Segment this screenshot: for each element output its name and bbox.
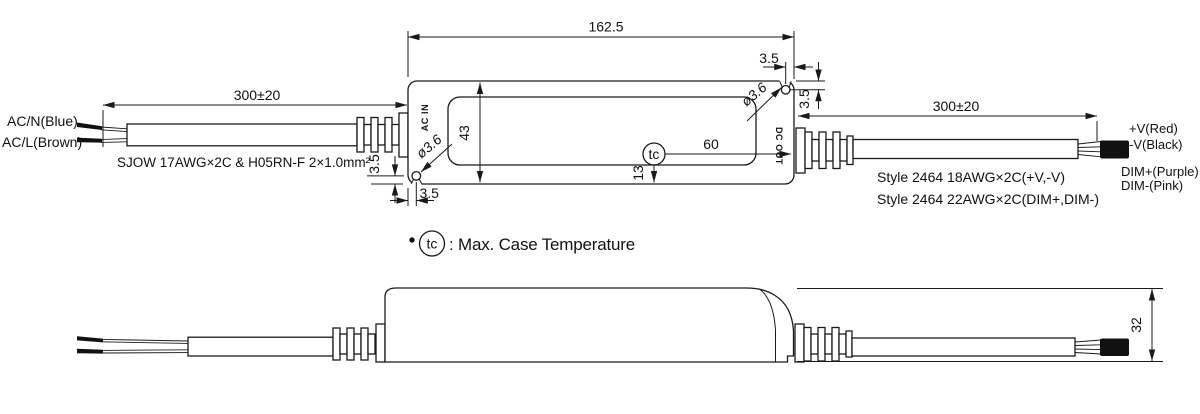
- dim-35-trh-text: 3.5: [759, 50, 779, 66]
- output-strain-relief: [796, 128, 853, 173]
- sv-output-tip: [1100, 339, 1129, 357]
- sv-input-jacket: [188, 337, 333, 356]
- dim-hole-h-right: 3.5: [759, 50, 813, 84]
- input-strain-relief: [357, 113, 408, 157]
- sv-output-jacket: [852, 338, 1075, 356]
- dim-cable-right: 300±20: [798, 98, 1097, 141]
- dim-case-length: 162.5: [408, 19, 794, 80]
- input-cable-jacket: [127, 124, 357, 146]
- top-view: AC IN DC OUT tc 60 13 43 162.5: [2, 19, 1199, 208]
- mechanical-drawing: AC IN DC OUT tc 60 13 43 162.5: [0, 0, 1200, 414]
- sv-input-tip-2: [77, 349, 103, 354]
- dim-hole-h-left: 3.5: [390, 182, 439, 206]
- note-text: : Max. Case Temperature: [449, 235, 635, 254]
- dim-35-trv-text: 3.5: [796, 89, 812, 109]
- output-spec1-label: Style 2464 18AWG×2C(+V,-V): [877, 169, 1065, 185]
- vminus-label: -V(Black): [1129, 137, 1182, 152]
- dim-32-text: 32: [1128, 317, 1144, 333]
- dim-300-right-text: 300±20: [933, 98, 980, 114]
- note-tc-symbol: tc: [427, 236, 438, 252]
- dim-minus-label: DIM-(Pink): [1121, 178, 1183, 193]
- dim-13-text: 13: [630, 165, 646, 181]
- dim-300-left-text: 300±20: [234, 87, 281, 103]
- input-wire-tip-1: [77, 123, 102, 131]
- dim-plus-label: DIM+(Purple): [1121, 164, 1199, 179]
- sv-input-strain-relief: [333, 324, 385, 362]
- sv-case-outline: [385, 288, 794, 362]
- dc-out-label: DC OUT: [774, 127, 784, 165]
- output-cable: [796, 128, 1129, 173]
- dim-hole-v-left: 3.5: [366, 154, 404, 203]
- tc-symbol-text: tc: [649, 146, 660, 162]
- sv-input-tip-1: [77, 336, 103, 342]
- side-view: 32: [77, 288, 1163, 362]
- drawing-canvas: AC IN DC OUT tc 60 13 43 162.5: [0, 0, 1200, 414]
- dim-hole-v-right: 3.5: [791, 62, 826, 109]
- input-cable: [77, 113, 408, 157]
- output-wire-tip: [1100, 141, 1129, 159]
- ac-n-label: AC/N(Blue): [7, 113, 78, 129]
- dim-43-text: 43: [456, 125, 472, 141]
- tc-note: tc : Max. Case Temperature: [409, 231, 635, 256]
- dim-162-text: 162.5: [588, 19, 623, 35]
- sv-output-strain-relief: [795, 324, 852, 362]
- ac-in-label: AC IN: [420, 104, 430, 132]
- ac-l-label: AC/L(Brown): [2, 134, 82, 150]
- output-spec2-label: Style 2464 22AWG×2C(DIM+,DIM-): [877, 191, 1099, 207]
- vplus-label: +V(Red): [1129, 121, 1178, 136]
- input-spec-label: SJOW 17AWG×2C & H05RN-F 2×1.0mm²: [117, 155, 371, 170]
- note-bullet: [409, 237, 414, 242]
- dim-35-blh-text: 3.5: [420, 185, 440, 201]
- output-cable-jacket: [853, 140, 1078, 159]
- dim-60-text: 60: [703, 136, 719, 152]
